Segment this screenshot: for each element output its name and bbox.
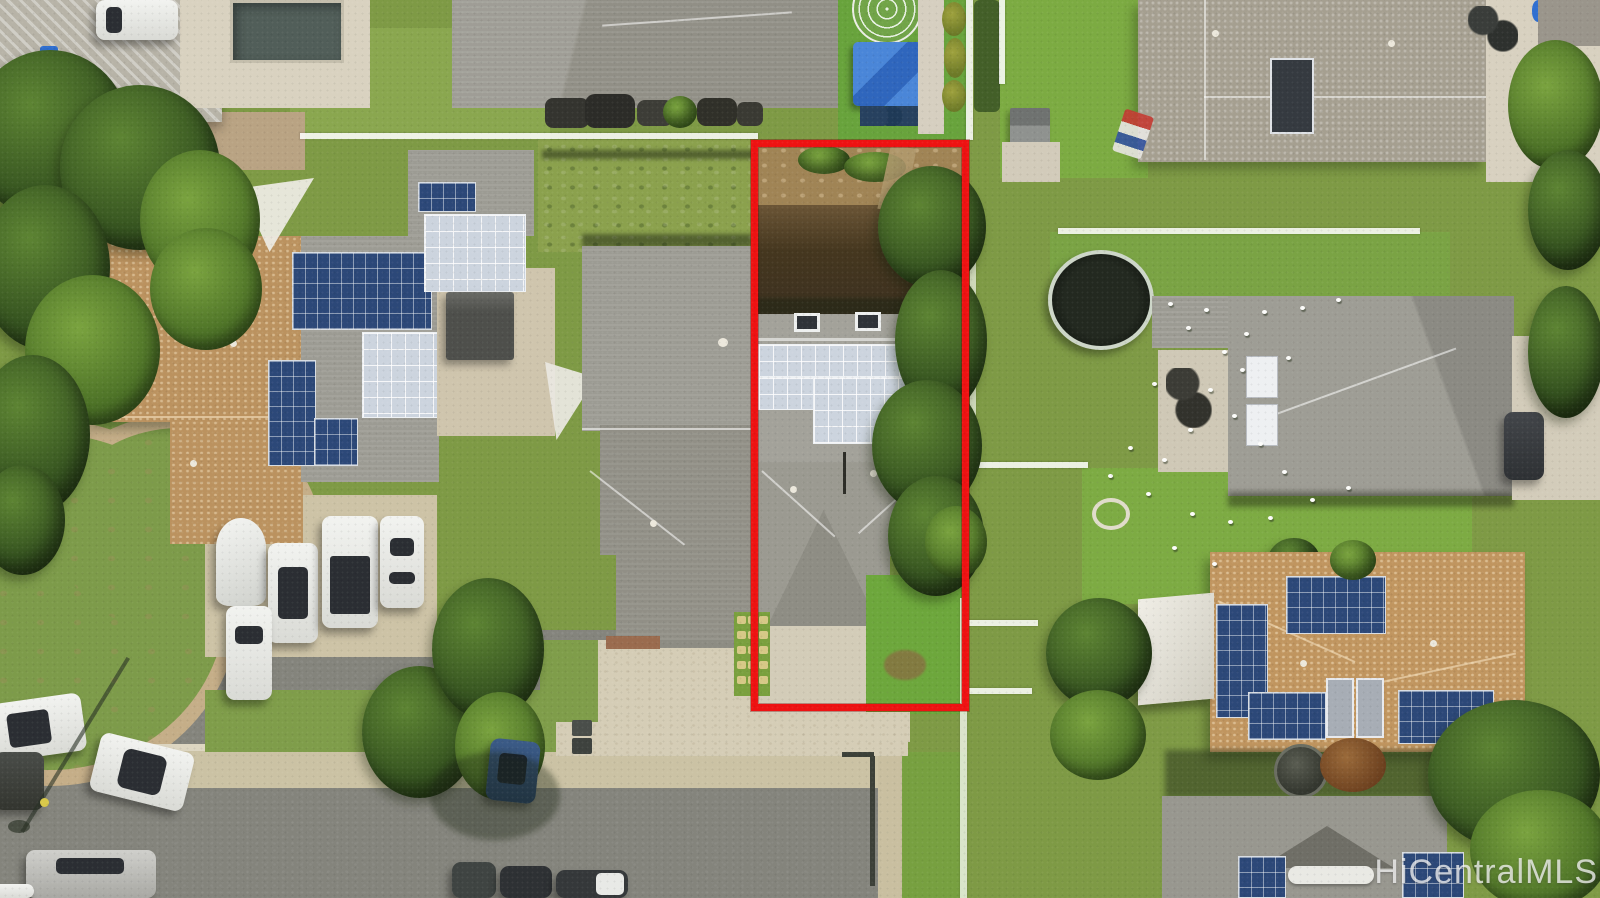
swimming-pool <box>230 0 344 63</box>
palm-cluster-2 <box>1050 690 1146 780</box>
yard-clutter-row <box>545 92 763 136</box>
covered-boat <box>216 518 266 606</box>
fence-shadow <box>542 150 758 159</box>
water-heater-panels <box>1326 678 1354 738</box>
red-leaf-tree <box>1320 738 1386 792</box>
subject-property-outline <box>751 140 969 711</box>
stepping-stone <box>737 616 746 624</box>
right-house-eave-shadow <box>1228 492 1514 507</box>
brick-edge <box>606 636 660 649</box>
bottom-car-dark-2 <box>500 866 552 898</box>
street-end-grass <box>902 752 966 898</box>
patio-chairs <box>860 106 920 126</box>
stepping-stone <box>737 676 746 684</box>
dark-shed <box>446 292 514 360</box>
ridge-line <box>582 428 752 430</box>
suv-black-roof <box>268 543 318 643</box>
right-edge-tree-3 <box>1528 150 1600 270</box>
rear-fence <box>300 133 758 139</box>
lamp-head-shadow <box>8 820 30 833</box>
white-sedan <box>380 516 424 608</box>
watermark: HiCentralMLS <box>1374 853 1598 892</box>
ridge-vent-white <box>1288 866 1374 884</box>
shed-pad <box>1002 142 1060 182</box>
tan-house-solar-top <box>1286 576 1386 634</box>
dome-yard-path <box>918 0 944 134</box>
yellow-bush3 <box>942 80 966 112</box>
street-lamp-arm <box>842 752 874 757</box>
blue-tarp-canopy <box>853 42 925 106</box>
tan-house-solar-mid <box>1248 692 1326 740</box>
utility-marker <box>40 798 49 807</box>
solar-array-blue-l2 <box>314 418 358 466</box>
bottom-suv-white-top <box>556 870 628 898</box>
hedge <box>974 0 1000 112</box>
small-pad <box>856 712 910 742</box>
patio-dark-items <box>1166 368 1212 428</box>
aerial-photo: HiCentralMLS <box>0 0 1600 898</box>
solar-array-silver-left <box>362 332 438 418</box>
stepping-stone <box>737 661 746 669</box>
silver-suv <box>26 850 156 898</box>
solar-array-blue-large <box>292 252 432 330</box>
yard-bush <box>1330 540 1376 580</box>
fence-corner-h <box>968 620 1038 626</box>
dark-car <box>1504 412 1544 480</box>
skylight-panel <box>1246 356 1278 398</box>
bottom-car-dark <box>452 862 496 898</box>
right-house-wing <box>1152 296 1234 348</box>
right-edge-tree-2 <box>1508 40 1600 170</box>
water-heater-panels-2 <box>1356 678 1384 738</box>
corner-roof-ne <box>1538 0 1600 46</box>
backyard-fence <box>1058 228 1420 234</box>
solar-water-heater <box>1270 58 1314 134</box>
yellow-bush2 <box>944 38 966 78</box>
bird <box>1152 382 1157 386</box>
center-house-roof-low <box>616 548 752 640</box>
fence-vertical <box>966 0 973 140</box>
white-car-corner <box>0 884 34 898</box>
outdoor-furniture <box>1468 6 1518 52</box>
center-house-roof-mid <box>600 425 752 555</box>
skylight-panel-2 <box>1246 404 1278 446</box>
fence-vertical-2 <box>999 0 1005 84</box>
stepping-stone <box>737 646 746 654</box>
stepping-stone <box>737 631 746 639</box>
apron-grass-strip <box>540 640 598 722</box>
fence-horizontal <box>970 462 1088 468</box>
solar-array-blue-l1 <box>268 360 316 466</box>
pergola-solar-silver <box>424 214 526 292</box>
parked-car-white <box>96 0 178 40</box>
bottom-house-solar <box>1238 856 1286 898</box>
trampoline <box>1048 250 1154 350</box>
fence-corner-h2 <box>968 688 1032 694</box>
right-edge-tree <box>1528 286 1600 418</box>
street-lamp-pole <box>870 756 875 886</box>
trash-bins-2 <box>572 738 592 754</box>
trash-bins <box>572 720 592 736</box>
fire-pit-ring <box>1092 498 1130 530</box>
yellow-bush <box>942 2 966 36</box>
garage-solar-blue <box>418 182 476 212</box>
palm-tree <box>150 228 262 350</box>
white-sedan-2 <box>226 606 272 700</box>
tree-shadow-street <box>430 752 560 840</box>
pickup-truck <box>322 516 378 628</box>
bird <box>1128 446 1133 450</box>
